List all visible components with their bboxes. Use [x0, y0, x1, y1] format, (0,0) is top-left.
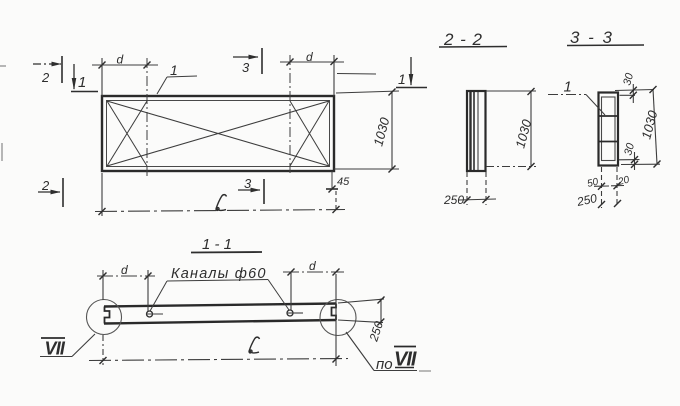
svg-text:d: d [117, 53, 124, 67]
svg-text:1 - 1: 1 - 1 [202, 236, 232, 253]
svg-text:1030: 1030 [370, 115, 392, 148]
svg-text:20: 20 [616, 174, 631, 188]
svg-text:1: 1 [78, 74, 86, 91]
svg-text:3 - 3: 3 - 3 [570, 28, 614, 47]
svg-text:3: 3 [244, 176, 252, 191]
svg-text:2: 2 [41, 70, 50, 85]
svg-text:250: 250 [443, 193, 464, 207]
svg-text:d: d [121, 263, 128, 277]
svg-text:45: 45 [337, 176, 350, 188]
svg-text:1030: 1030 [638, 108, 660, 141]
svg-text:d: d [309, 259, 316, 273]
svg-text:по: по [376, 356, 393, 373]
svg-text:2: 2 [41, 178, 50, 193]
svg-text:d: d [306, 50, 313, 64]
svg-text:VII: VII [45, 339, 66, 359]
svg-text:250: 250 [366, 319, 386, 344]
svg-text:50: 50 [586, 176, 600, 189]
svg-text:30: 30 [621, 71, 636, 87]
svg-text:3: 3 [242, 60, 250, 75]
svg-text:1: 1 [564, 79, 572, 96]
svg-text:1: 1 [398, 71, 406, 87]
svg-text:1: 1 [170, 62, 178, 78]
svg-text:250: 250 [575, 191, 599, 209]
